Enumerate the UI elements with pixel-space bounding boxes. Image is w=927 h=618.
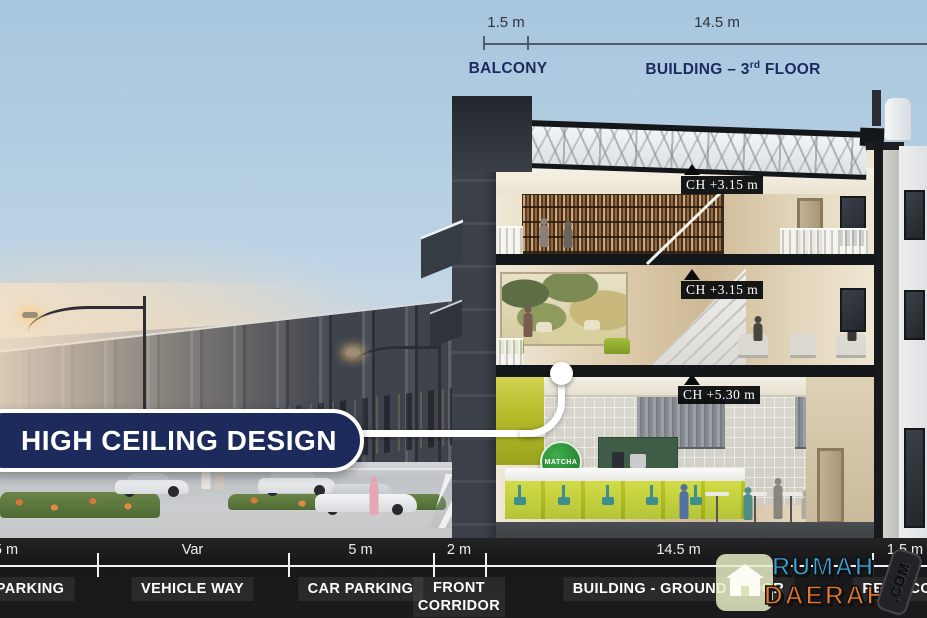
segment-dimension: 5 m: [288, 542, 433, 558]
green-chair: [604, 338, 630, 354]
lounge-chair: [790, 334, 816, 358]
rear-corridor-strip: [883, 150, 899, 543]
ceiling-height-tag: CH +5.30 m: [678, 386, 760, 404]
balcony-railing: [497, 226, 523, 254]
coffee-machine: [630, 454, 646, 468]
bar-stool: [558, 497, 570, 505]
person-figure: [772, 478, 784, 520]
person-figure: [522, 306, 534, 338]
mezzanine-railing: [780, 228, 868, 254]
home-icon: [730, 578, 760, 596]
building-label-ordinal: rd: [750, 60, 761, 71]
segment-label: PARKING: [0, 577, 74, 601]
bar-stool: [690, 497, 702, 505]
segment-vehicle-way: Var VEHICLE WAY: [97, 538, 288, 618]
high-ceiling-callout: HIGH CEILING DESIGN: [0, 409, 364, 472]
neighbor-window: [904, 190, 925, 240]
streetlight-lamp: [346, 350, 360, 355]
person-figure: [742, 487, 754, 521]
segment-dimension: 5 m: [0, 542, 76, 558]
floor-lamp: [536, 322, 552, 332]
car: [315, 484, 417, 515]
building-dimension: 14.5 m: [657, 14, 777, 31]
top-dimension-line: [483, 43, 927, 45]
rooftop-chimney: [872, 90, 881, 126]
watermark-word-rumah: RUMAH: [772, 553, 875, 582]
person-figure: [562, 221, 574, 249]
leader-line: [350, 430, 546, 437]
ground-floor-door: [817, 448, 844, 524]
watermark-word-daerah: DAERAH: [764, 580, 887, 611]
building-label-text: BUILDING – 3: [645, 61, 749, 78]
dimension-tick: [483, 36, 485, 50]
segment-dimension: Var: [97, 542, 288, 558]
car: [115, 473, 189, 497]
ceiling-height-tag: CH +3.15 m: [681, 176, 763, 194]
balcony-dimension: 1.5 m: [466, 14, 546, 31]
segment-label: CAR PARKING: [298, 577, 424, 601]
rear-wall-section-cut: [874, 140, 883, 543]
bar-stool: [602, 497, 614, 505]
callout-text: HIGH CEILING DESIGN: [0, 425, 337, 457]
ceiling-height-arrow: [684, 374, 700, 385]
floor-slab: [496, 254, 884, 265]
neighbor-window: [904, 290, 925, 340]
streetlight-lamp: [22, 312, 38, 318]
bar-stool: [514, 497, 526, 505]
balcony-label: BALCONY: [448, 60, 568, 78]
slide: MATCHA CH +3.15 m CH +3.15 m CH +5.30 m …: [0, 0, 927, 618]
person-figure: [368, 476, 380, 516]
floor-lamp: [584, 320, 600, 330]
segment-label: VEHICLE WAY: [131, 577, 254, 601]
segment-dimension: 2 m: [433, 542, 485, 558]
front-facade-top: [452, 96, 532, 172]
person-figure: [538, 218, 550, 248]
car-body: [315, 494, 417, 512]
leader-dot: [550, 362, 573, 385]
neighbor-window: [904, 428, 925, 528]
rooftop-tank: [885, 98, 911, 140]
building-third-floor-label: BUILDING – 3rd FLOOR: [613, 60, 853, 79]
segment-car-parking: 5 m CAR PARKING: [288, 538, 433, 618]
person-figure: [752, 316, 764, 342]
person-figure: [678, 484, 690, 520]
cafe-sign-text: MATCHA: [545, 459, 578, 466]
segment-parking: 5 m PARKING: [0, 538, 100, 618]
ceiling-height-arrow: [684, 269, 700, 280]
ceiling-height-tag: CH +3.15 m: [681, 281, 763, 299]
car-body: [115, 480, 189, 494]
ceiling-height-arrow: [684, 164, 700, 175]
mural-artwork: [500, 272, 628, 346]
cafe-counter-top: [505, 468, 745, 481]
coffee-machine: [612, 452, 624, 468]
building-label-text: FLOOR: [760, 61, 820, 78]
balcony-railing: [497, 338, 523, 365]
library-bookshelves: [522, 194, 724, 254]
cafe-counter-front: [505, 481, 745, 519]
watermark-badge-text: .COM: [886, 560, 914, 604]
second-floor-window: [840, 288, 866, 332]
segment-front-corridor: 2 m FRONT CORRIDOR: [433, 538, 485, 618]
dimension-tick: [527, 36, 529, 50]
bar-stool: [646, 497, 658, 505]
